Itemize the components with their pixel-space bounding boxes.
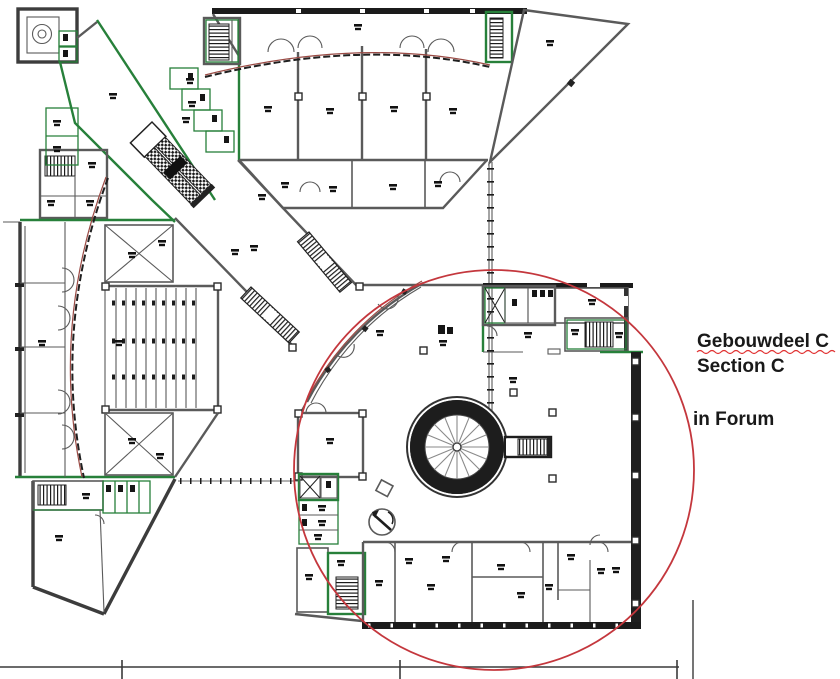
east-facade-wall — [631, 352, 641, 628]
southwest-triangle — [33, 479, 298, 614]
floor-plan-page: Gebouwdeel C Section C in Forum — [0, 0, 840, 679]
annotation-subtitle: Section C — [697, 356, 785, 377]
corridor-stair — [241, 287, 299, 343]
annotation-note: in Forum — [693, 409, 774, 430]
stair-core — [486, 12, 512, 62]
corridor-stair — [298, 232, 352, 292]
fixture-icon — [63, 34, 68, 41]
revolving-door-symbol — [369, 509, 395, 535]
auditorium-seating — [102, 283, 221, 413]
floor-plan-canvas: Gebouwdeel C Section C in Forum — [0, 0, 840, 679]
square-room — [298, 413, 363, 477]
spiral-staircase — [407, 397, 507, 497]
entrance-pavilion — [18, 9, 97, 62]
annotation-block: Gebouwdeel C Section C in Forum — [693, 331, 835, 430]
curved-facade — [307, 283, 423, 402]
furniture-symbol — [376, 480, 393, 497]
stair-core — [204, 18, 240, 64]
west-wing — [3, 108, 266, 478]
annotation-title: Gebouwdeel C — [697, 331, 829, 352]
wc-strip — [170, 68, 234, 152]
curved-facade — [72, 178, 108, 478]
fixture-icon — [63, 50, 68, 57]
east-triangle-room — [490, 10, 628, 162]
north-wing — [204, 8, 628, 481]
south-facade-wall — [362, 622, 641, 629]
gallery-stair — [505, 437, 551, 457]
